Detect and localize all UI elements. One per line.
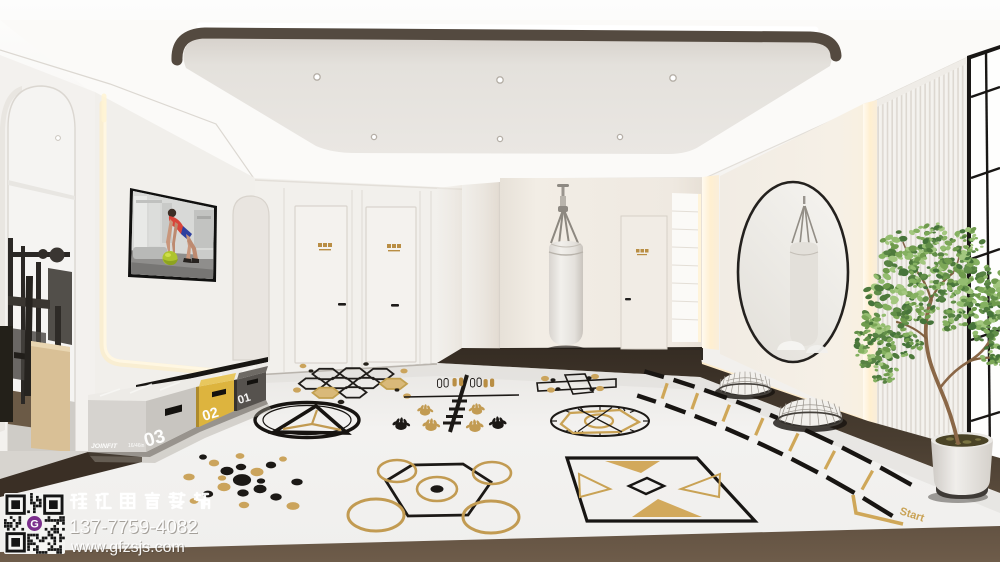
svg-text:G: G bbox=[30, 519, 39, 531]
svg-text:www.gfzsjs.com: www.gfzsjs.com bbox=[70, 539, 185, 556]
svg-text:16/46in: 16/46in bbox=[128, 443, 145, 449]
svg-text:JOINFIT: JOINFIT bbox=[91, 443, 118, 450]
svg-text:137-7759-4082: 137-7759-4082 bbox=[69, 517, 198, 538]
